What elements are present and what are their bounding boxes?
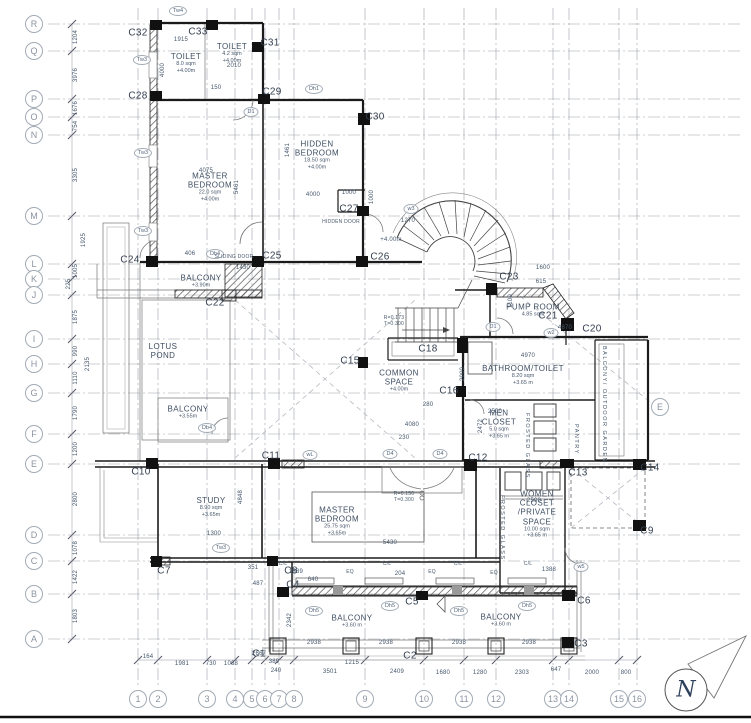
room-label: BALCONY+3.60 m	[466, 612, 536, 628]
dim-label: 1803	[73, 609, 79, 623]
vertical-label: FROSTED GLASS	[499, 495, 505, 561]
room-label: MEN CLOSET5.0 sqm+3.65 m	[476, 409, 522, 440]
dim-label: 406	[185, 251, 196, 257]
door-window-marker: w2	[543, 328, 558, 338]
note-label: C/L	[454, 561, 462, 567]
door-window-marker: Dh5	[518, 601, 536, 611]
dim-label: 1389	[289, 569, 303, 575]
dim-label: 389	[269, 659, 280, 665]
grid-bubble: A	[25, 630, 43, 648]
door-window-marker: Dh5	[381, 601, 399, 611]
dim-label: 204	[395, 571, 406, 577]
room-label: MASTER BEDROOM22.0 sqm+4.00m	[170, 172, 250, 203]
room-name: BALCONY	[466, 612, 536, 621]
dim-label: 1280	[473, 670, 487, 676]
room-sub: +4.00m	[170, 196, 250, 202]
column-tag: C30	[365, 112, 384, 123]
grid-bubble: G	[25, 384, 43, 402]
dim-label: 990	[73, 346, 79, 357]
column-tag: C31	[260, 38, 279, 49]
room-sub: +3.65m	[297, 530, 377, 536]
column-tag: C12	[468, 453, 487, 464]
room-sub: +3.60 m	[317, 622, 387, 628]
column-tag: C9	[640, 526, 653, 537]
dim-label: 1600	[536, 265, 550, 271]
dim-label: 1110	[73, 371, 79, 384]
column-tag: C2	[403, 651, 416, 662]
dim-label: 2409	[390, 669, 404, 675]
grid-bubble: 14	[560, 690, 578, 708]
room-sub: +4.00m	[163, 68, 209, 74]
column-tag: C22	[205, 298, 224, 309]
grid-bubble: R	[25, 15, 43, 33]
dim-label: 1300	[207, 531, 221, 537]
dim-label: 2135	[85, 357, 91, 371]
column-tag: C3	[574, 639, 587, 650]
dim-label: 615	[536, 279, 547, 285]
room-name: PUMP ROOM	[503, 302, 563, 311]
dim-label: 647	[551, 667, 562, 673]
dim-label: 5430	[383, 540, 397, 546]
dim-label: 230	[399, 435, 410, 441]
column-tag: C13	[568, 468, 587, 479]
dim-label: 2342	[287, 613, 293, 627]
column-tag: C6	[577, 596, 590, 607]
note-label: HIDDEN DOOR	[322, 219, 360, 225]
dim-label: 1925	[81, 233, 87, 247]
note-label: C/L	[524, 561, 532, 567]
dim-label: 2800	[73, 492, 79, 506]
grid-bubble: 3	[198, 690, 216, 708]
room-name: STUDY	[186, 496, 236, 505]
note-label: SLIDING DOOR	[215, 254, 254, 260]
grid-bubble: B	[25, 585, 43, 603]
dim-label: 640	[308, 577, 319, 583]
dim-label: 2000	[460, 367, 466, 381]
dim-label: 1915	[174, 37, 188, 43]
room-label: PUMP ROOM4.85 sqm	[503, 302, 563, 318]
note-label: EQ	[490, 570, 498, 576]
note-label: C/L	[279, 561, 287, 567]
door-window-marker: D4	[382, 449, 397, 459]
grid-bubble: E	[651, 398, 669, 416]
room-name: MASTER BEDROOM	[170, 172, 250, 190]
room-label: LOTUS POND	[143, 342, 183, 360]
column-tag: C28	[128, 91, 147, 102]
room-sub: +3.65 m	[511, 532, 563, 538]
room-name: TOILET	[163, 52, 209, 61]
column-tag: C10	[131, 467, 150, 478]
dim-label: 730	[206, 661, 217, 667]
grid-bubble: N	[25, 126, 43, 144]
dim-label: 2667	[252, 651, 266, 657]
room-name: LOTUS POND	[143, 342, 183, 360]
dim-label: +4.00m	[380, 237, 401, 243]
grid-bubble: C	[25, 552, 43, 570]
dim-label: 1270	[401, 218, 415, 224]
column-tag: C32	[128, 28, 147, 39]
door-window-marker: D1	[485, 322, 500, 332]
grid-bubble: M	[25, 207, 43, 225]
dim-label: 1680	[436, 670, 450, 676]
grid-bubble: 15	[610, 690, 628, 708]
grid-bubble: D	[25, 526, 43, 544]
room-sub: +3.90m	[171, 282, 231, 288]
dim-label: 4870	[558, 325, 572, 331]
door-window-marker: D1	[243, 107, 258, 117]
dim-label: 3305	[73, 168, 79, 182]
room-label: COMMON SPACE+4.00m	[369, 369, 429, 394]
dim-label: 1078	[73, 541, 79, 555]
grid-bubble: 1	[129, 690, 147, 708]
column-tag: C23	[499, 272, 518, 283]
room-name: HIDDEN BEDROOM	[282, 140, 352, 158]
note-label: T=0.300	[394, 497, 414, 503]
column-tag: C14	[640, 463, 659, 474]
room-label: TOILET8.0 sqm+4.00m	[163, 52, 209, 74]
note-label: EQ	[346, 569, 354, 575]
room-label: BALCONY+3.90m	[171, 273, 231, 289]
dim-label: 1875	[73, 310, 79, 324]
column-tag: C25	[262, 251, 281, 262]
column-tag: C33	[188, 27, 207, 38]
room-sub: +3.55m	[163, 413, 213, 419]
note-label: EQ	[428, 569, 436, 575]
dim-label: 2938	[379, 640, 393, 646]
room-name: WOMEN CLOSET /PRIVATE SPACE	[511, 489, 563, 526]
floor-plan: RQPONMLKJIHGFEDCBA1234567891011121314151…	[0, 0, 751, 723]
grid-bubble: 4	[226, 690, 244, 708]
note-label: C/L	[383, 561, 391, 567]
room-name: BALCONY	[163, 404, 213, 413]
dim-label: 2938	[307, 640, 321, 646]
room-label: BALCONY+3.55m	[163, 404, 213, 420]
column-tag: C11	[262, 451, 281, 462]
dim-label: 487	[253, 581, 264, 587]
dim-label: 150	[211, 85, 222, 91]
room-name: BALCONY	[171, 273, 231, 282]
dim-label: 4000	[306, 192, 320, 198]
door-window-marker: D4	[432, 449, 447, 459]
dim-label: 1430	[236, 265, 250, 271]
dim-label: 1981	[175, 661, 189, 667]
dim-label: 1790	[73, 406, 79, 420]
room-label: BALCONY+3.60 m	[317, 613, 387, 629]
column-tag: C24	[120, 255, 139, 266]
door-window-marker: Tw3	[134, 226, 152, 236]
grid-bubble: H	[25, 355, 43, 373]
door-window-marker: Tw3	[212, 543, 230, 553]
column-tag: C15	[340, 356, 359, 367]
room-label: TOILET4.2 sqm+4.00m	[212, 42, 252, 64]
dim-label: 800	[621, 670, 632, 676]
grid-bubble: E	[25, 455, 43, 473]
dim-label: 1000	[369, 190, 375, 204]
north-label: N	[676, 677, 695, 702]
grid-bubble: I	[25, 330, 43, 348]
door-window-marker: w3	[403, 204, 418, 214]
dim-label: 2000	[585, 670, 599, 676]
column-tag: C20	[582, 324, 601, 335]
door-window-marker: Tw4	[169, 6, 187, 16]
vertical-label: FROSTED GLASS	[524, 413, 530, 479]
room-name: MEN CLOSET	[476, 409, 522, 427]
room-label: STUDY8.90 sqm+3.65m	[186, 496, 236, 518]
column-tag: C26	[370, 252, 389, 263]
dim-label: 4080	[405, 422, 419, 428]
dim-label: 1204	[73, 30, 79, 44]
room-name: BALCONY	[317, 613, 387, 622]
dim-label: 3976	[73, 68, 79, 82]
dim-label: 2303	[515, 670, 529, 676]
room-label: HIDDEN BEDROOM18.50 sqm+4.00m	[282, 140, 352, 171]
dim-label: 2938	[522, 640, 536, 646]
grid-bubble: 8	[285, 690, 303, 708]
dim-label: 1422	[73, 570, 79, 584]
grid-bubble: 11	[455, 690, 473, 708]
note-label: T=0.300	[384, 321, 404, 327]
door-window-marker: Dh1	[305, 84, 323, 94]
dim-label: 1215	[345, 660, 359, 666]
grid-bubble: Q	[25, 42, 43, 60]
room-label: BATHROOM/TOILET8.20 sqm+3.65 m	[468, 364, 578, 386]
room-label: WOMEN CLOSET /PRIVATE SPACE10.00 sqm+3.6…	[511, 489, 563, 538]
room-sub: +4.00m	[369, 387, 429, 393]
grid-bubble: P	[25, 90, 43, 108]
grid-bubble: O	[25, 108, 43, 126]
dim-label: 1068	[224, 661, 238, 667]
dim-label: 225	[66, 279, 72, 290]
door-window-marker: w5	[573, 562, 588, 572]
dim-label: 240	[271, 668, 282, 674]
column-tag: C18	[418, 344, 437, 355]
dim-label: 280	[423, 402, 434, 408]
grid-bubble: 9	[356, 690, 374, 708]
room-sub: +3.65m	[186, 512, 236, 518]
dim-label: 754	[73, 121, 79, 132]
room-sub: +3.65 m	[468, 380, 578, 386]
room-name: MASTER BEDROOM	[297, 506, 377, 524]
room-name: BATHROOM/TOILET	[468, 364, 578, 373]
dim-label: 4848	[238, 490, 244, 504]
vertical-label: BALCONY/ OUTDOOR GARDEN	[601, 346, 607, 463]
column-tag: C4	[286, 580, 299, 591]
room-name: TOILET	[212, 42, 252, 51]
column-tag: C5	[405, 597, 418, 608]
dim-label: 1676	[73, 101, 79, 115]
dim-label: 2938	[452, 640, 466, 646]
room-label: MASTER BEDROOM25.75 sqm+3.65m	[297, 506, 377, 537]
door-window-marker: wL	[302, 450, 317, 460]
column-tag: C29	[262, 87, 281, 98]
room-sub: +3.60 m	[466, 621, 536, 627]
grid-bubble: 16	[628, 690, 646, 708]
room-sub: 4.85 sqm	[503, 311, 563, 317]
door-window-marker: Tw3	[134, 148, 152, 158]
grid-bubble: 2	[149, 690, 167, 708]
column-tag: C27	[339, 204, 358, 215]
plan-labels: RQPONMLKJIHGFEDCBA1234567891011121314151…	[0, 0, 751, 723]
room-sub: +4.00m	[282, 164, 352, 170]
door-window-marker: Db4	[198, 423, 216, 433]
grid-bubble: 12	[487, 690, 505, 708]
dim-label: 1000	[342, 190, 356, 196]
door-window-marker: Tw3	[133, 55, 151, 65]
dim-label: 4970	[521, 353, 535, 359]
grid-bubble: F	[25, 425, 43, 443]
vertical-label: PANTRY	[573, 424, 579, 455]
column-tag: C7	[157, 566, 170, 577]
dim-label: 164	[143, 654, 154, 660]
dim-label: 1005	[73, 264, 79, 278]
dim-label: 1200	[73, 442, 79, 456]
dim-label: 3501	[323, 669, 337, 675]
grid-bubble: J	[25, 286, 43, 304]
room-sub: +3.65 m	[476, 433, 522, 439]
dim-label: 1388	[542, 567, 556, 573]
grid-bubble: 10	[415, 690, 433, 708]
room-name: COMMON SPACE	[369, 369, 429, 387]
room-sub: +4.00m	[212, 58, 252, 64]
column-tag: C16	[439, 386, 458, 397]
dim-label: 351	[248, 565, 259, 571]
